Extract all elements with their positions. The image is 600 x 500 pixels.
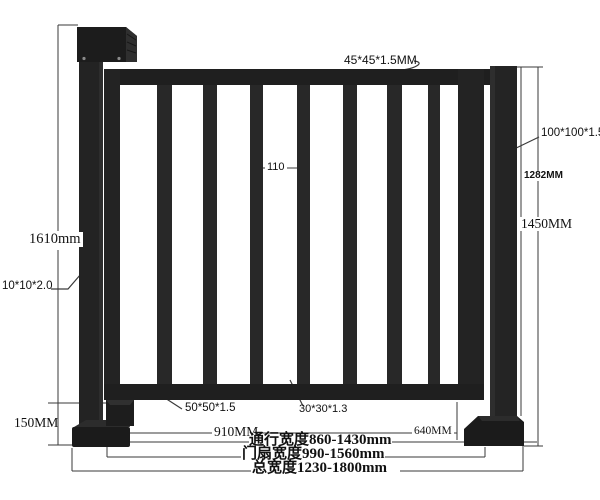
gate-dimension-diagram: 45*45*1.5MM 100*100*1.5 1282MM 1450MM 16…	[0, 0, 600, 500]
left-stile	[104, 69, 120, 400]
diagram-graphics	[0, 0, 600, 500]
picket-bar	[387, 85, 402, 385]
total-width-dim: 总宽度1230-1800mm	[252, 461, 387, 476]
picket-bar	[203, 85, 217, 385]
overall-height-dim: 1610mm	[27, 232, 83, 247]
picket-bar	[428, 85, 440, 385]
top-rail-callout: 45*45*1.5MM	[344, 54, 417, 66]
right-span-dim: 640MM	[412, 426, 454, 438]
picket-bar	[343, 85, 357, 385]
post-inner-height-dim: 1282MM	[522, 171, 565, 181]
picket-bar	[297, 85, 310, 385]
post-outer-height-dim: 1450MM	[519, 217, 574, 231]
right-post-callout: 100*100*1.5	[541, 128, 600, 140]
picket-spacing-dim: 110	[265, 162, 287, 173]
top-rail	[104, 69, 490, 85]
screw	[82, 57, 85, 60]
screw	[117, 57, 120, 60]
picket-bar	[157, 85, 172, 385]
picket-bar	[250, 85, 263, 385]
gate-leaf	[104, 69, 490, 426]
left-base	[72, 427, 130, 447]
bottom-rail-callout: 50*50*1.5	[185, 403, 236, 415]
right-stile	[458, 69, 484, 400]
bottom-rail	[104, 384, 484, 400]
left-post-callout: 10*10*2.0	[2, 281, 53, 293]
picket-callout: 30*30*1.3	[299, 404, 347, 415]
base-height-dim: 150MM	[14, 416, 58, 430]
